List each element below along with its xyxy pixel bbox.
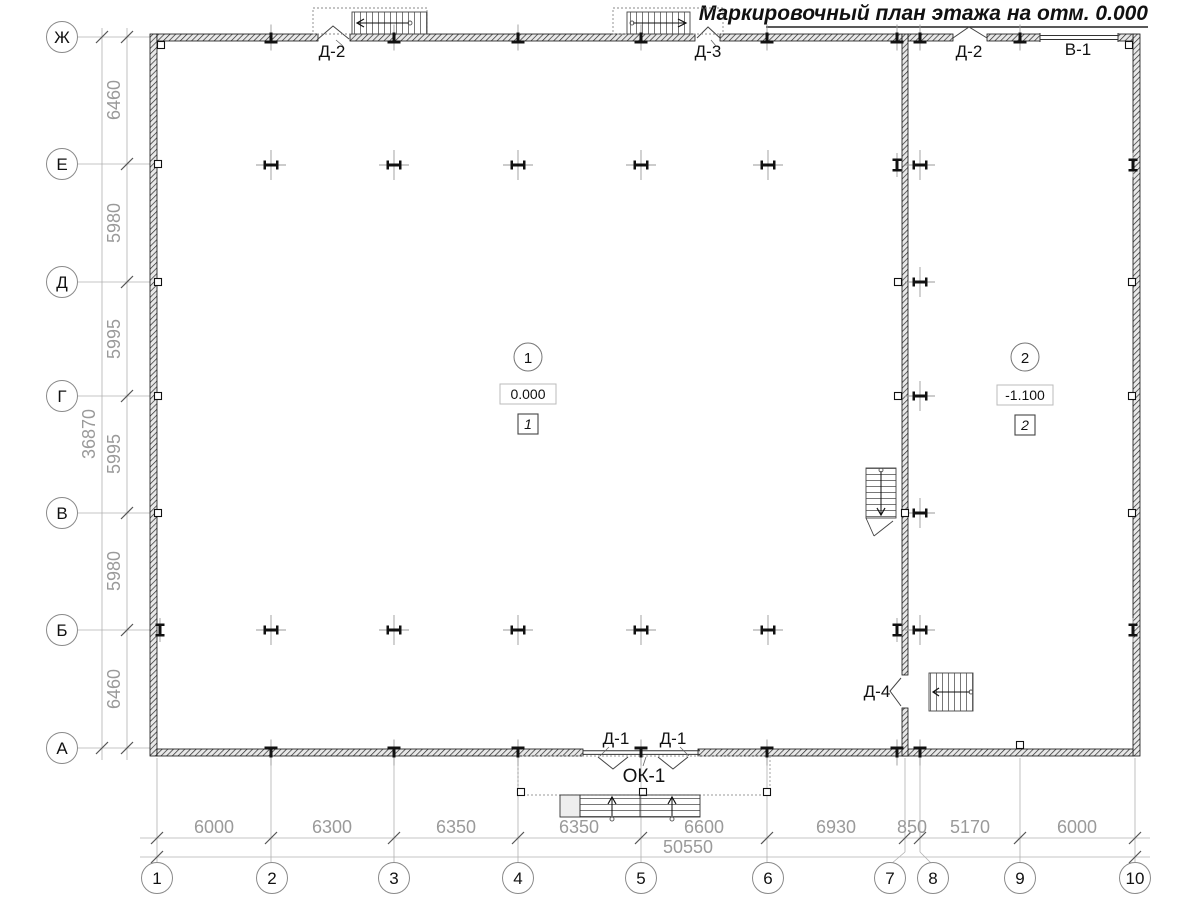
dim-6-7: 6930 xyxy=(816,817,856,837)
room-2-elevation: -1.100 xyxy=(1005,387,1045,403)
room-2-number: 2 xyxy=(1021,350,1029,367)
axis-bubble-b: Б xyxy=(56,621,67,640)
wall-top-4 xyxy=(908,34,953,41)
dim-1-2: 6000 xyxy=(194,817,234,837)
axis-bubble-8: 8 xyxy=(928,869,937,888)
wall-top-6 xyxy=(1118,34,1133,41)
axis-bubble-g: Г xyxy=(57,387,66,406)
dim-total-height: 36870 xyxy=(79,409,99,459)
axis-bubble-5: 5 xyxy=(636,869,645,888)
axis-bubble-d: Д xyxy=(56,273,68,292)
dim-e-d: 5980 xyxy=(104,203,124,243)
dim-total-width: 50550 xyxy=(663,837,713,857)
wall-internal-upper xyxy=(902,34,908,675)
axis-bubble-7: 7 xyxy=(885,869,894,888)
dim-7-8: 850 xyxy=(897,817,927,837)
wall-top-5 xyxy=(987,34,1040,41)
porch-top-left xyxy=(313,8,427,34)
walls xyxy=(150,34,1140,756)
axis-bubble-e: Е xyxy=(56,155,67,174)
axis-bubble-1: 1 xyxy=(152,869,161,888)
room-1-elevation: 0.000 xyxy=(510,386,545,402)
room-2-finish-tag: 2 xyxy=(1020,417,1029,433)
wall-top-2 xyxy=(350,34,695,41)
axis-bubble-6: 6 xyxy=(763,869,772,888)
dim-8-9: 5170 xyxy=(950,817,990,837)
axis-bubble-a: А xyxy=(56,739,68,758)
door-swing-top-right xyxy=(953,27,987,38)
interior-columns xyxy=(256,150,935,645)
dim-3-4: 6350 xyxy=(436,817,476,837)
dim-zh-e: 6460 xyxy=(104,80,124,120)
left-dimension-lines xyxy=(78,28,150,760)
label-door-d3: Д-3 xyxy=(695,42,722,61)
wall-pilaster-marks xyxy=(155,25,1138,766)
label-window-ok1: ОК-1 xyxy=(623,766,666,787)
drawing-title-block: Маркировочный план этажа на отм. 0.000 xyxy=(699,2,1149,27)
stair-mid-right xyxy=(866,468,896,536)
axis-bubble-9: 9 xyxy=(1015,869,1024,888)
floor-plan-drawing: Маркировочный план этажа на отм. 0.000 6… xyxy=(0,0,1200,900)
door-swing-top-left xyxy=(318,26,349,39)
label-door-d1-left: Д-1 xyxy=(603,729,630,748)
stair-d4 xyxy=(929,673,973,711)
label-door-d4: Д-4 xyxy=(864,682,891,701)
axis-bubble-v: В xyxy=(56,504,67,523)
dim-d-g: 5995 xyxy=(104,319,124,359)
bottom-dimension-values: 6000 6300 6350 6350 6600 6930 850 5170 6… xyxy=(194,817,1097,857)
opening-labels: Д-2 Д-3 Д-2 В-1 Д-1 Д-1 ОК-1 Д-4 xyxy=(319,40,1092,787)
dim-2-3: 6300 xyxy=(312,817,352,837)
door-swing-top-mid xyxy=(697,27,720,38)
drawing-title: Маркировочный план этажа на отм. 0.000 xyxy=(699,2,1149,25)
wall-top-1 xyxy=(157,34,318,41)
dim-9-10: 6000 xyxy=(1057,817,1097,837)
dim-5-6: 6600 xyxy=(684,817,724,837)
wall-top-3 xyxy=(720,34,902,41)
label-door-d2-right: Д-2 xyxy=(956,42,983,61)
wall-bottom-2 xyxy=(698,749,1133,756)
bottom-dimension-ticks xyxy=(151,832,1141,863)
room-2-marker: 2 -1.100 2 xyxy=(997,343,1053,435)
axis-bubble-4: 4 xyxy=(513,869,522,888)
door-swing-d4 xyxy=(890,678,901,706)
axis-bubble-3: 3 xyxy=(389,869,398,888)
dim-4-5: 6350 xyxy=(559,817,599,837)
label-door-d1-right: Д-1 xyxy=(660,729,687,748)
row-axis-bubbles: Ж Е Д Г В Б А xyxy=(47,22,78,764)
room-1-number: 1 xyxy=(524,350,532,367)
dim-g-v: 5995 xyxy=(104,434,124,474)
column-axis-bubbles: 1 2 3 4 5 6 7 8 9 10 xyxy=(142,863,1151,894)
room-1-finish-tag: 1 xyxy=(524,416,532,432)
dim-b-a: 6460 xyxy=(104,669,124,709)
left-dimension-ticks xyxy=(96,31,133,754)
axis-bubble-10: 10 xyxy=(1126,869,1145,888)
dim-v-b: 5980 xyxy=(104,551,124,591)
label-gate-v1: В-1 xyxy=(1065,40,1091,59)
door-swings xyxy=(318,26,987,769)
axis-bubble-2: 2 xyxy=(267,869,276,888)
room-1-marker: 1 0.000 1 xyxy=(500,343,556,434)
left-dimension-values: 6460 5980 5995 5995 5980 6460 36870 xyxy=(79,80,124,709)
plan-svg: Маркировочный план этажа на отм. 0.000 6… xyxy=(0,0,1200,900)
axis-bubble-zh: Ж xyxy=(54,28,70,47)
